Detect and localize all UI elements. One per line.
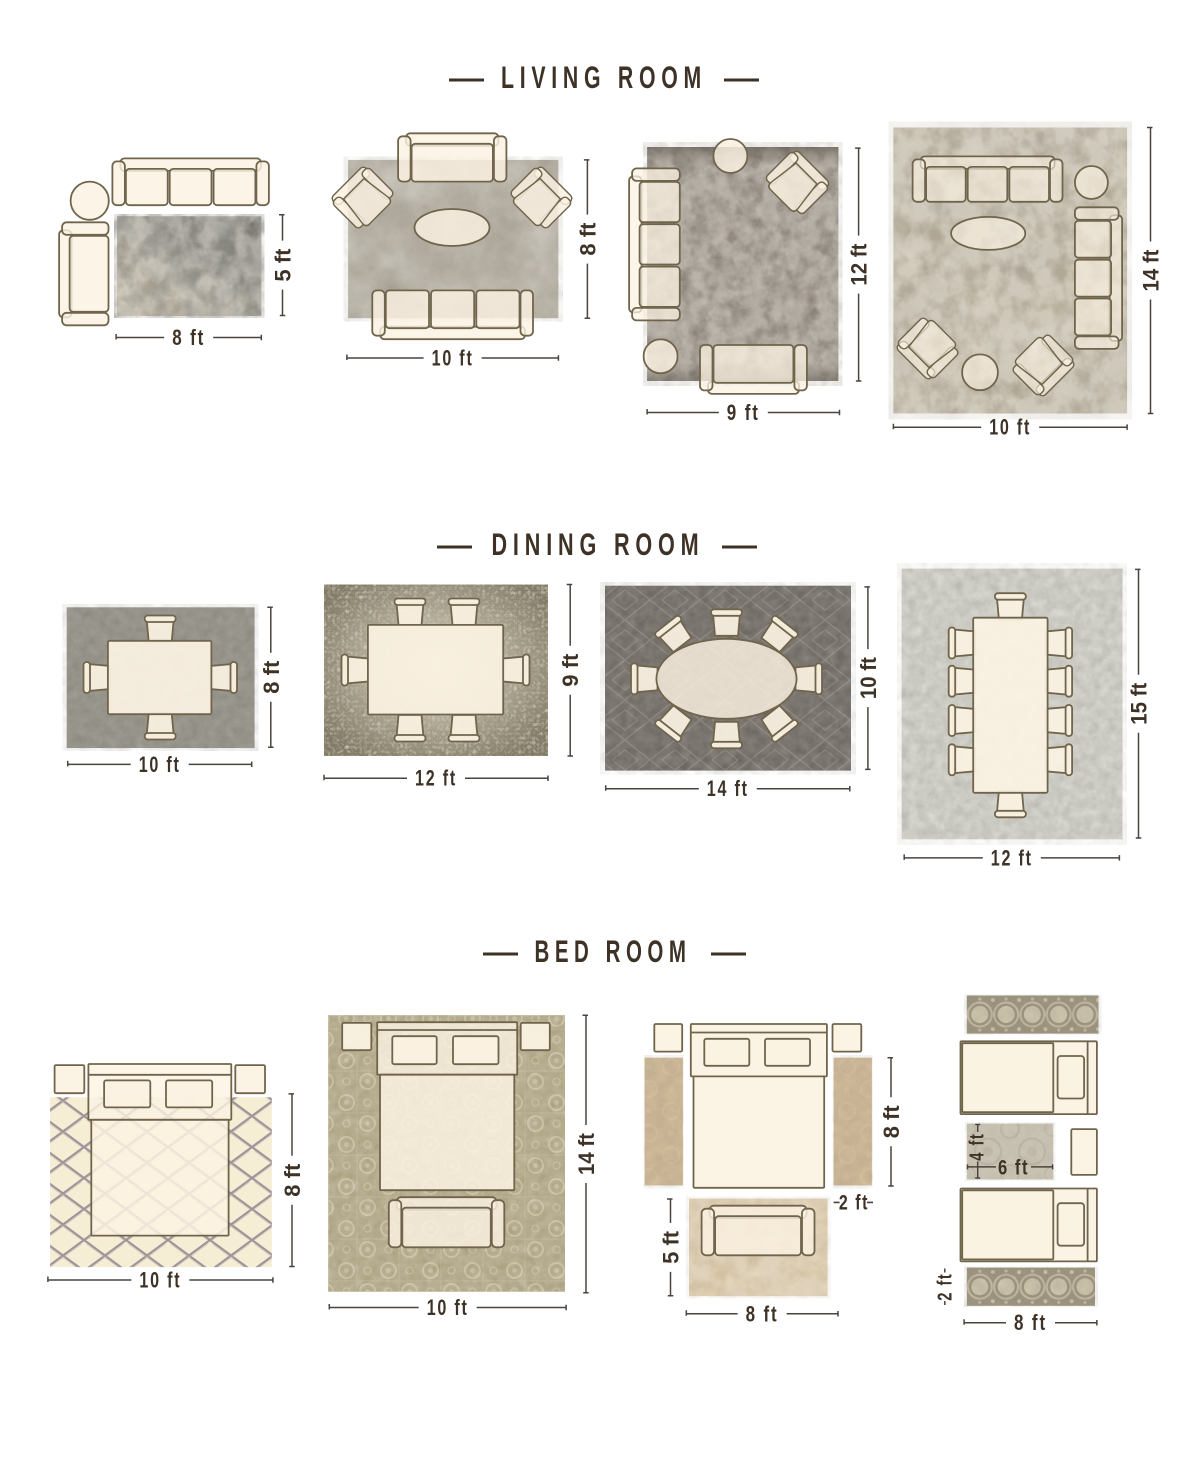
svg-text:5 ft: 5 ft <box>659 1230 684 1264</box>
svg-text:10 ft: 10 ft <box>139 1268 181 1293</box>
svg-text:6 ft: 6 ft <box>998 1155 1029 1179</box>
svg-text:10 ft: 10 ft <box>432 346 474 371</box>
svg-text:9 ft: 9 ft <box>727 400 760 425</box>
svg-text:14 ft: 14 ft <box>1139 249 1164 292</box>
svg-text:BED ROOM: BED ROOM <box>535 933 692 969</box>
svg-text:2 ft: 2 ft <box>839 1192 869 1215</box>
svg-text:8 ft: 8 ft <box>1014 1310 1047 1335</box>
svg-text:DINING ROOM: DINING ROOM <box>492 526 705 562</box>
svg-text:LIVING ROOM: LIVING ROOM <box>501 59 707 95</box>
svg-text:10 ft: 10 ft <box>856 656 881 699</box>
svg-text:4 ft: 4 ft <box>967 1133 989 1161</box>
svg-text:15 ft: 15 ft <box>1127 682 1152 725</box>
svg-text:10 ft: 10 ft <box>139 752 181 777</box>
svg-text:8 ft: 8 ft <box>259 660 284 694</box>
svg-text:12 ft: 12 ft <box>415 766 457 791</box>
svg-text:10 ft: 10 ft <box>989 415 1031 440</box>
svg-text:14 ft: 14 ft <box>707 776 749 801</box>
svg-text:12 ft: 12 ft <box>847 243 872 286</box>
svg-text:8 ft: 8 ft <box>172 325 205 350</box>
svg-text:10 ft: 10 ft <box>427 1295 469 1320</box>
svg-text:8 ft: 8 ft <box>575 222 600 256</box>
svg-text:14 ft: 14 ft <box>574 1132 599 1175</box>
svg-text:9 ft: 9 ft <box>558 653 583 687</box>
svg-text:8 ft: 8 ft <box>746 1301 779 1326</box>
svg-text:5 ft: 5 ft <box>271 248 296 282</box>
svg-text:12 ft: 12 ft <box>991 845 1033 870</box>
svg-text:8 ft: 8 ft <box>280 1163 305 1197</box>
svg-text:2 ft: 2 ft <box>934 1273 956 1301</box>
svg-text:8 ft: 8 ft <box>879 1105 904 1139</box>
